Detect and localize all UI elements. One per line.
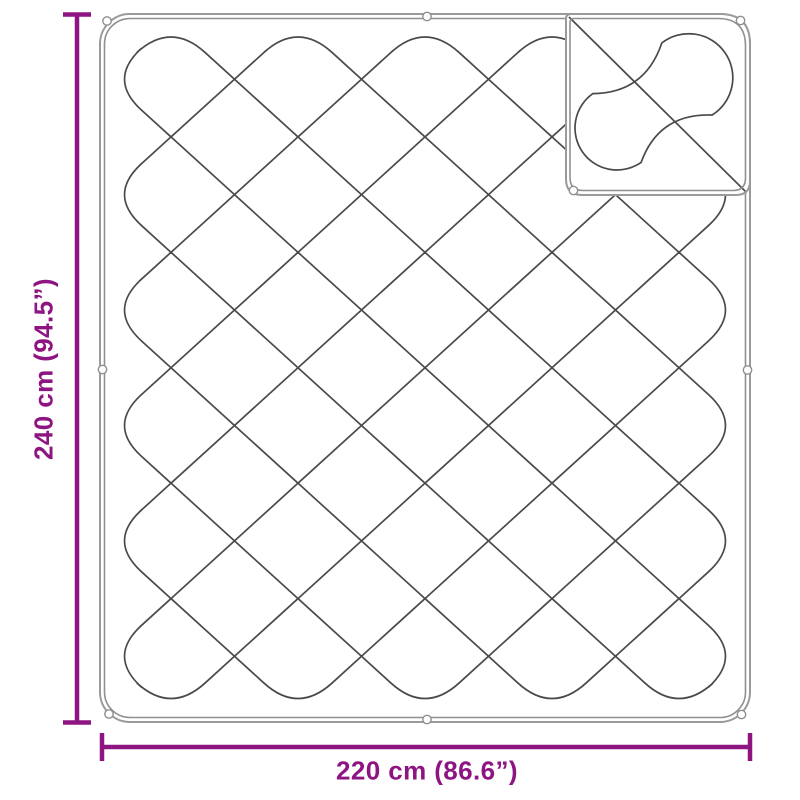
blanket-dimension-diagram: 240 cm (94.5”) 220 cm (86.6”) <box>0 0 800 800</box>
tie-loop <box>423 715 431 723</box>
height-dimension-line <box>63 15 91 723</box>
tie-loop <box>736 16 744 24</box>
diagram-canvas <box>0 0 800 800</box>
tie-loop <box>98 365 106 373</box>
tie-loop <box>569 186 577 194</box>
height-dimension-label: 240 cm (94.5”) <box>29 278 60 460</box>
width-dimension-label: 220 cm (86.6”) <box>336 756 518 787</box>
tie-loop <box>105 710 113 718</box>
tie-loop <box>737 710 745 718</box>
tie-loop <box>423 12 431 20</box>
tie-loop <box>743 366 751 374</box>
folded-corner-flap <box>566 14 750 195</box>
tie-loop <box>103 17 111 25</box>
